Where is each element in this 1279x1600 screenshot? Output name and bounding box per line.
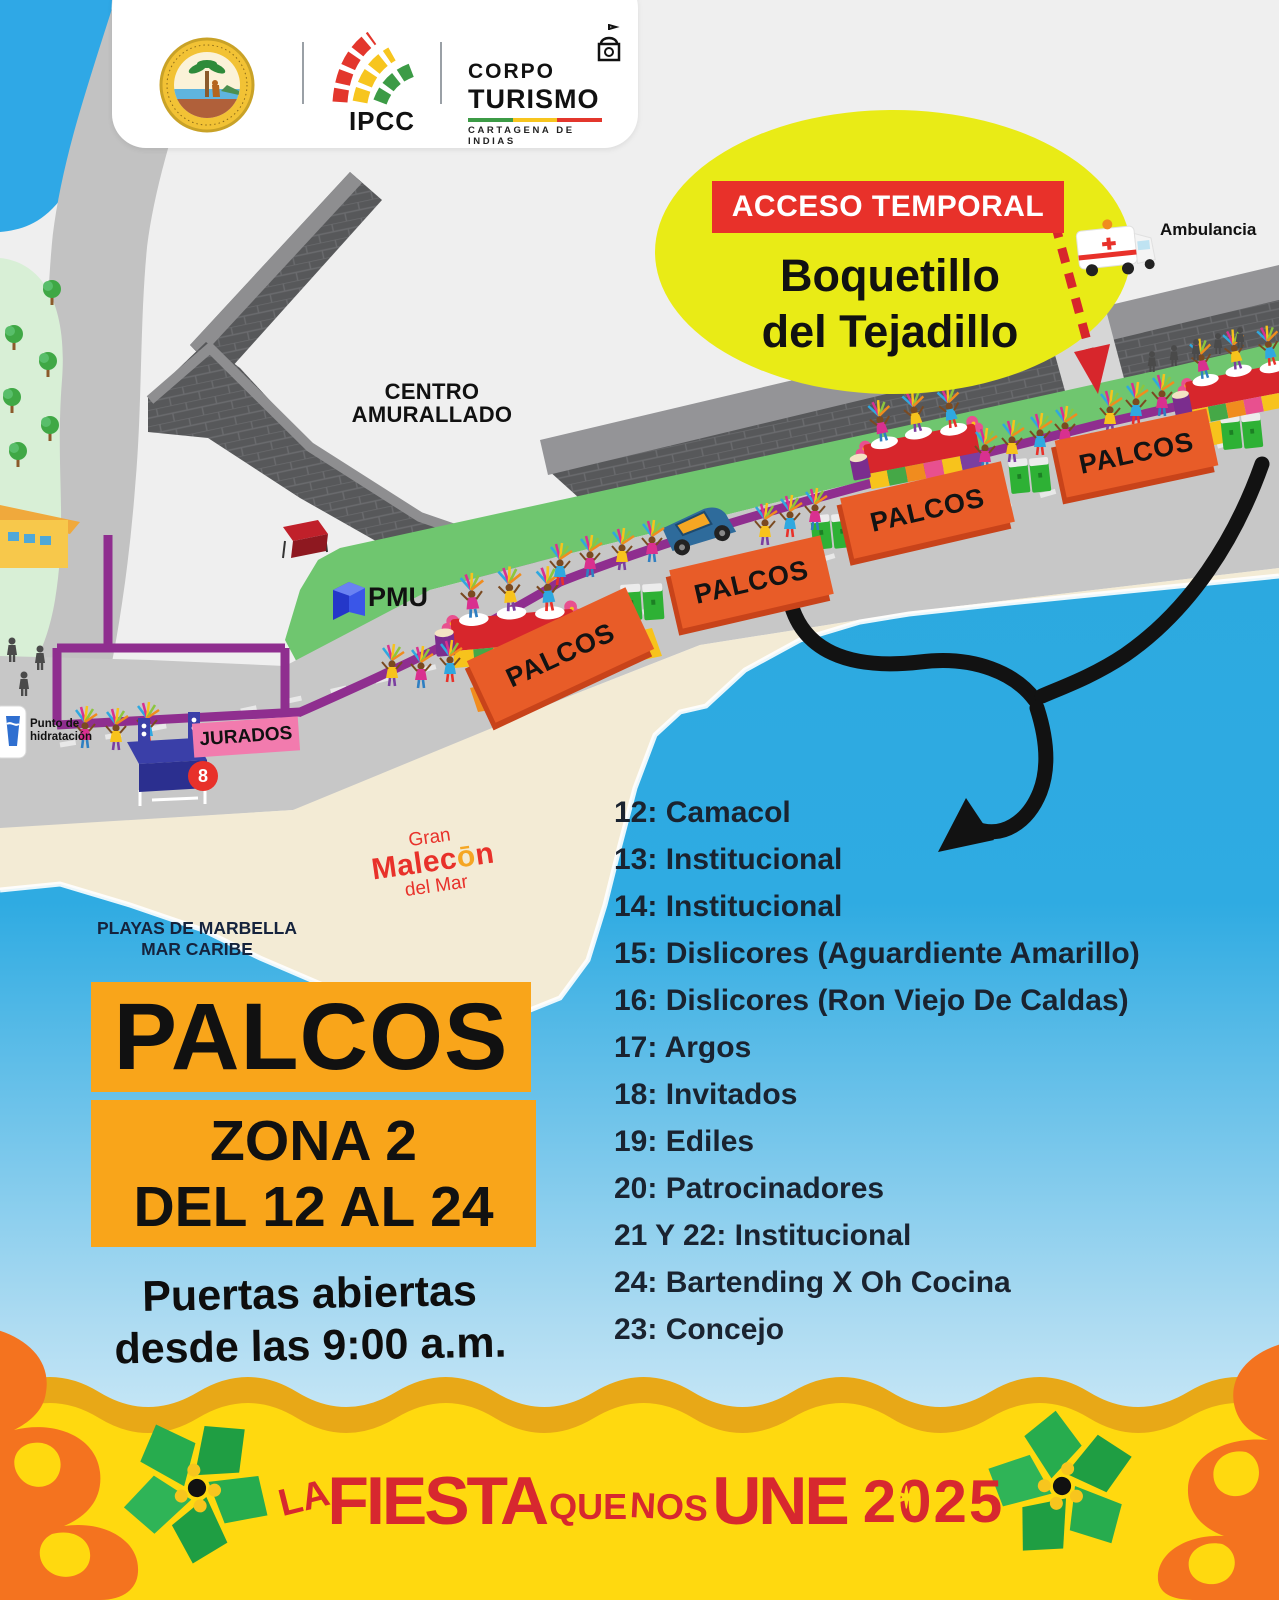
footer-slogan: LA FIESTA QUE NOS UNE 2025 ✶ [0,1462,1279,1540]
access-place-line2: del Tejadillo [700,304,1080,360]
corpoturismo-line2: TURISMO [468,84,618,115]
slogan-year: 2025 ✶ [863,1467,1004,1536]
palcos-list-item: 24: Bartending X Oh Cocina [614,1259,1264,1306]
palcos-list: 12: Camacol 13: Institucional 14: Instit… [614,789,1264,1353]
doors-open-label: Puertas abiertas desde las 9:00 a.m. [49,1263,571,1376]
hydration-icon [0,706,26,758]
ipcc-logo-icon [326,26,426,106]
palcos-list-item: 13: Institucional [614,836,1264,883]
ambulance-label: Ambulancia [1160,221,1256,239]
access-place-line1: Boquetillo [700,248,1080,304]
palcos-list-item: 21 Y 22: Institucional [614,1212,1264,1259]
stage-number-badge: 8 [188,761,218,791]
hydration-label: Punto de hidratación [30,718,92,744]
slogan-la: LA [274,1472,334,1526]
palcos-list-item: 15: Dislicores (Aguardiente Amarillo) [614,930,1264,977]
access-banner: ACCESO TEMPORAL [712,181,1064,233]
header-divider-1 [302,42,304,104]
slogan-une: UNE [712,1462,847,1540]
palcos-list-item: 19: Ediles [614,1118,1264,1165]
cartagena-seal [159,37,255,133]
panel-zone-box: ZONA 2 DEL 12 AL 24 [91,1100,536,1247]
palcos-list-item: 18: Invitados [614,1071,1264,1118]
ipcc-logo-text: IPCC [334,106,430,137]
palcos-list-item: 14: Institucional [614,883,1264,930]
header-divider-2 [440,42,442,104]
star-icon: ✶ [894,1481,921,1516]
corpoturismo-logo: CORPO TURISMO CARTAGENA DE INDIAS [468,60,618,147]
slogan-que: QUE [549,1486,627,1528]
slogan-nos: NOS [629,1484,709,1530]
tower-icon [590,24,628,66]
panel-zona: ZONA 2 [210,1108,417,1174]
palcos-list-item: 17: Argos [614,1024,1264,1071]
access-place: Boquetillo del Tejadillo [700,248,1080,360]
palcos-list-item: 23: Concejo [614,1306,1264,1353]
centro-amurallado-label: CENTRO AMURALLADO [332,380,532,426]
corpoturismo-tricolor [468,118,602,122]
panel-title-box: PALCOS [91,982,531,1092]
header-logo-card: IPCC CORPO TURISMO CARTAGENA DE INDIAS [112,0,638,148]
palcos-list-item: 12: Camacol [614,789,1264,836]
corpoturismo-subtitle: CARTAGENA DE INDIAS [468,125,618,147]
slogan-fiesta: FIESTA [327,1462,546,1540]
event-poster: IPCC CORPO TURISMO CARTAGENA DE INDIAS A… [0,0,1279,1600]
palcos-list-item: 16: Dislicores (Ron Viejo De Caldas) [614,977,1264,1024]
playas-label: PLAYAS DE MARBELLA MAR CARIBE [97,918,297,960]
palcos-list-item: 20: Patrocinadores [614,1165,1264,1212]
panel-rango: DEL 12 AL 24 [133,1174,493,1240]
pmu-label: PMU [368,583,428,611]
